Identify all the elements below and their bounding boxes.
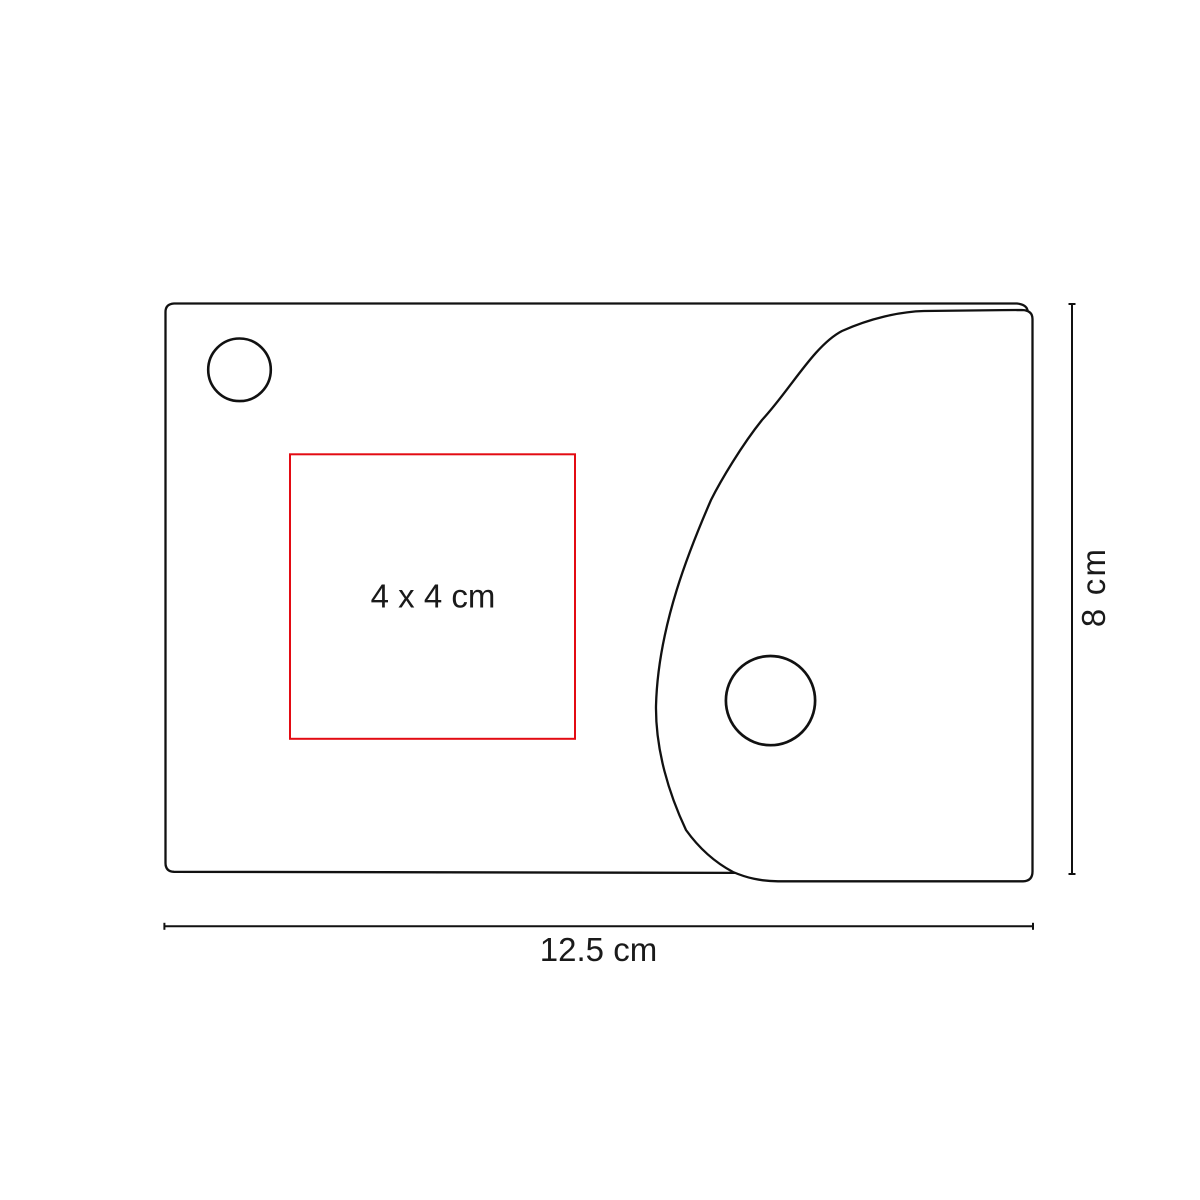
svg-text:4 x 4 cm: 4 x 4 cm [371,578,496,615]
svg-text:8 cm: 8 cm [1075,547,1112,627]
svg-text:12.5 cm: 12.5 cm [540,931,657,968]
